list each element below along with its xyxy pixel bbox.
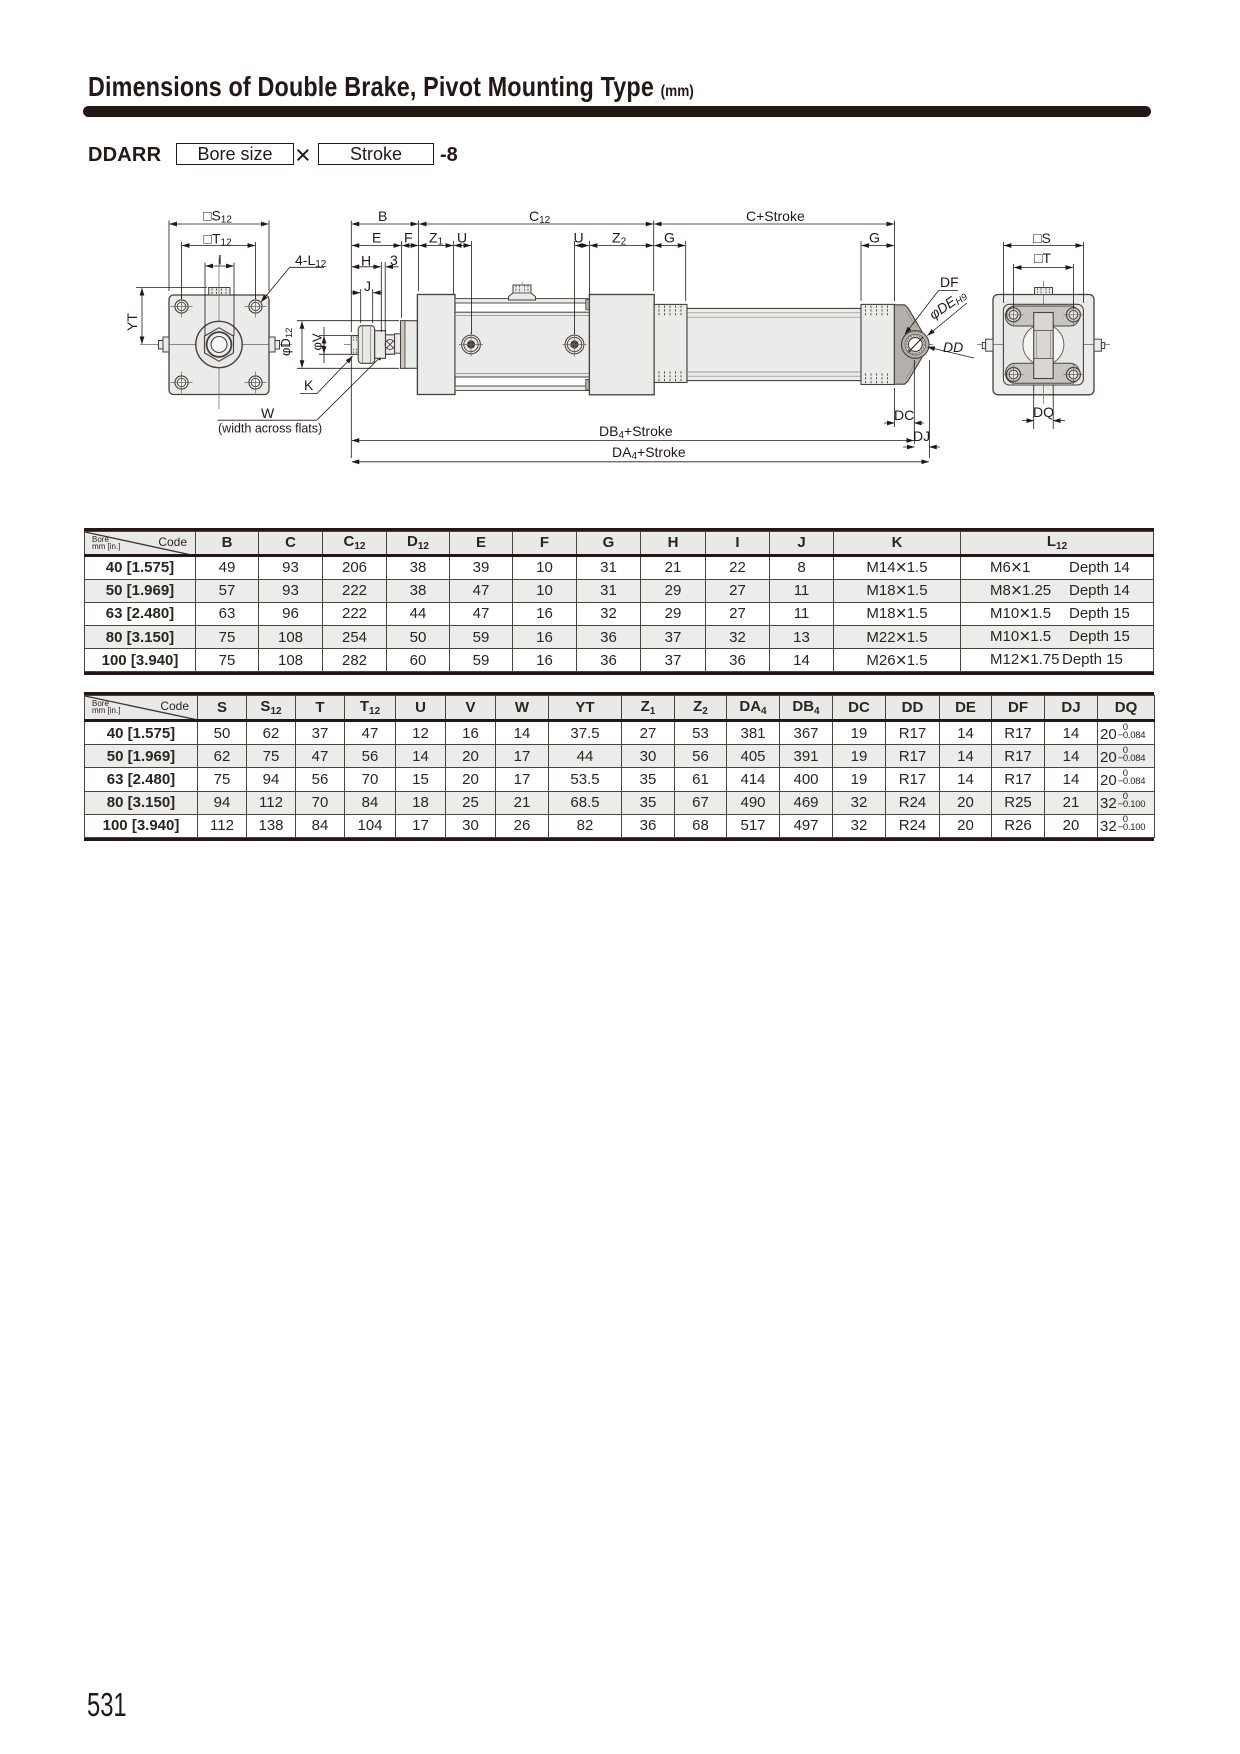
svg-text:U: U bbox=[457, 230, 467, 246]
svg-text:F: F bbox=[404, 230, 413, 246]
svg-text:(width across flats): (width across flats) bbox=[218, 422, 322, 436]
svg-text:W: W bbox=[261, 405, 275, 421]
svg-text:DC: DC bbox=[894, 407, 914, 423]
svg-text:DF: DF bbox=[940, 274, 959, 290]
svg-text:φV: φV bbox=[310, 333, 325, 350]
svg-text:E: E bbox=[372, 230, 381, 246]
svg-text:□S: □S bbox=[1033, 230, 1051, 246]
svg-text:□T: □T bbox=[1034, 250, 1051, 266]
svg-text:YT: YT bbox=[124, 313, 140, 331]
svg-text:J: J bbox=[364, 278, 371, 294]
svg-text:Z1: Z1 bbox=[429, 230, 444, 248]
svg-text:C+Stroke: C+Stroke bbox=[746, 208, 805, 224]
svg-text:□S12: □S12 bbox=[203, 208, 232, 226]
svg-text:G: G bbox=[869, 230, 880, 246]
svg-text:U: U bbox=[574, 230, 584, 246]
svg-text:□T12: □T12 bbox=[204, 231, 233, 249]
svg-text:K: K bbox=[304, 377, 314, 393]
svg-text:B: B bbox=[378, 208, 387, 224]
svg-text:I: I bbox=[218, 252, 222, 268]
svg-text:DA4+Stroke: DA4+Stroke bbox=[612, 444, 686, 462]
svg-text:C12: C12 bbox=[529, 208, 551, 226]
svg-text:DQ: DQ bbox=[1033, 404, 1054, 420]
svg-text:H: H bbox=[361, 253, 371, 269]
svg-text:φD12: φD12 bbox=[278, 328, 295, 356]
svg-text:3: 3 bbox=[390, 252, 398, 268]
svg-text:DB4+Stroke: DB4+Stroke bbox=[599, 423, 673, 441]
svg-text:DD: DD bbox=[943, 339, 963, 355]
svg-text:G: G bbox=[664, 230, 675, 246]
svg-text:DJ: DJ bbox=[913, 428, 930, 444]
svg-text:Z2: Z2 bbox=[612, 230, 627, 248]
